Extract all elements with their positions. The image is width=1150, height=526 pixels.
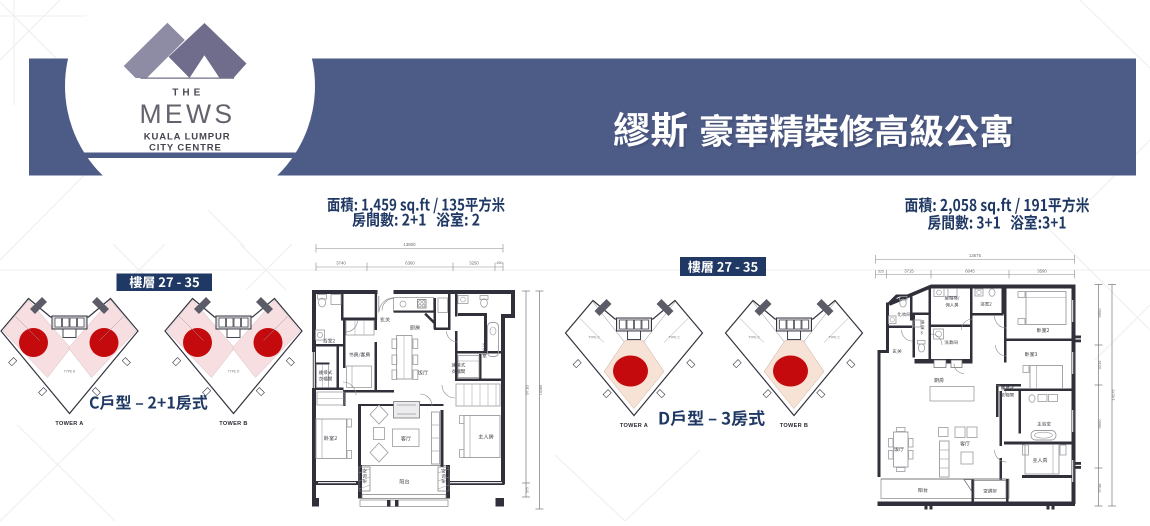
svg-text:TOWER B: TOWER B <box>780 423 808 429</box>
svg-text:450: 450 <box>497 261 503 265</box>
svg-text:575: 575 <box>526 487 530 493</box>
svg-text:TYPE C: TYPE C <box>588 336 600 340</box>
svg-text:3215: 3215 <box>1097 360 1102 370</box>
svg-text:TOWER A: TOWER A <box>620 423 648 429</box>
svg-text:6045: 6045 <box>965 268 975 273</box>
svg-text:5748: 5748 <box>1097 483 1102 493</box>
svg-text:TYPE B: TYPE B <box>64 370 75 374</box>
svg-text:13800: 13800 <box>404 242 417 247</box>
svg-text:TYPE C: TYPE C <box>748 336 760 340</box>
svg-text:KUALA LUMPUR: KUALA LUMPUR <box>144 132 231 143</box>
svg-text:9650: 9650 <box>1097 419 1102 429</box>
svg-text:10285: 10285 <box>539 385 543 396</box>
svg-text:525: 525 <box>878 269 884 273</box>
svg-text:6360: 6360 <box>405 261 415 266</box>
svg-text:3250: 3250 <box>469 261 479 266</box>
svg-text:MEWS: MEWS <box>140 99 233 129</box>
svg-text:3740: 3740 <box>336 261 346 266</box>
svg-text:3715: 3715 <box>904 268 914 273</box>
svg-text:TYPE D: TYPE D <box>228 370 240 374</box>
svg-text:9650: 9650 <box>1097 308 1102 318</box>
svg-text:13675: 13675 <box>969 253 982 258</box>
svg-text:CITY CENTRE: CITY CENTRE <box>149 142 222 153</box>
svg-text:9710: 9710 <box>525 385 530 395</box>
svg-text:TOWER B: TOWER B <box>219 421 247 427</box>
svg-text:TYPE C: TYPE C <box>828 336 840 340</box>
svg-text:TYPE C: TYPE C <box>668 336 680 340</box>
svg-text:14275: 14275 <box>1111 389 1116 401</box>
svg-text:TOWER A: TOWER A <box>55 421 83 427</box>
svg-text:3590: 3590 <box>1037 268 1047 273</box>
svg-text:THE: THE <box>172 87 202 98</box>
